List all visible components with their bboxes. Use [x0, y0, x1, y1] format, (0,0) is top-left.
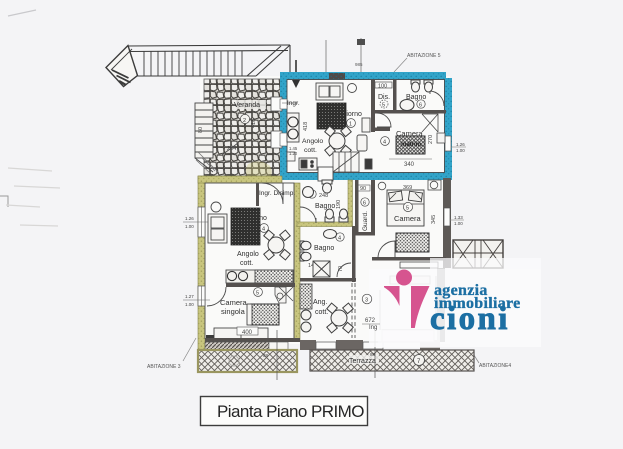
- svg-text:672: 672: [365, 318, 376, 324]
- svg-text:ABITAZIONE 5: ABITAZIONE 5: [407, 53, 441, 59]
- svg-text:Ing: Ing: [369, 325, 377, 331]
- svg-text:400: 400: [242, 330, 253, 336]
- svg-text:1.00: 1.00: [185, 224, 194, 229]
- svg-text:2: 2: [243, 118, 246, 124]
- svg-text:Camera: Camera: [220, 298, 248, 307]
- svg-text:88: 88: [370, 352, 376, 357]
- svg-text:singola: singola: [221, 307, 246, 316]
- svg-text:4: 4: [262, 227, 265, 233]
- svg-text:5: 5: [256, 291, 259, 297]
- svg-text:80: 80: [198, 127, 204, 133]
- svg-text:369: 369: [403, 185, 412, 191]
- svg-text:345: 345: [431, 215, 437, 224]
- svg-text:284: 284: [227, 146, 236, 152]
- svg-text:6: 6: [419, 103, 422, 109]
- svg-text:88: 88: [263, 353, 269, 358]
- svg-text:340: 340: [404, 162, 415, 168]
- svg-text:cott.: cott.: [315, 309, 328, 316]
- svg-text:Dis.: Dis.: [378, 94, 390, 101]
- svg-text:cioni: cioni: [430, 301, 510, 337]
- svg-text:90: 90: [360, 186, 366, 192]
- svg-text:1.27: 1.27: [185, 294, 194, 299]
- svg-text:Bagno: Bagno: [315, 203, 335, 210]
- svg-text:4: 4: [338, 236, 341, 242]
- svg-text:1.33: 1.33: [454, 215, 463, 220]
- svg-text:cott.: cott.: [240, 260, 253, 267]
- svg-text:Angolo: Angolo: [237, 251, 259, 258]
- svg-text:Terrazza: Terrazza: [349, 358, 376, 365]
- svg-text:Pianta Piano PRIMO: Pianta Piano PRIMO: [217, 402, 364, 421]
- svg-text:4: 4: [383, 140, 386, 146]
- svg-text:985: 985: [355, 62, 363, 67]
- svg-text:5: 5: [382, 103, 385, 109]
- svg-text:1.00: 1.00: [454, 221, 463, 226]
- svg-text:1.00: 1.00: [185, 302, 194, 307]
- svg-text:Ingr. Disimp.: Ingr. Disimp.: [259, 190, 295, 197]
- svg-text:248: 248: [319, 193, 328, 199]
- svg-text:Ang.: Ang.: [313, 299, 327, 306]
- svg-text:1: 1: [349, 122, 352, 128]
- svg-text:418: 418: [251, 119, 257, 128]
- svg-text:100: 100: [378, 84, 387, 90]
- svg-text:cott.: cott.: [304, 147, 317, 154]
- svg-text:Guard.: Guard.: [362, 211, 369, 231]
- svg-text:Veranda: Veranda: [234, 102, 260, 109]
- svg-text:Ingr.: Ingr.: [287, 100, 300, 107]
- svg-text:3: 3: [365, 298, 368, 304]
- svg-text:Angolo: Angolo: [302, 138, 323, 145]
- svg-text:1.26: 1.26: [185, 216, 194, 221]
- svg-text:190: 190: [336, 200, 342, 209]
- svg-text:Camera: Camera: [394, 214, 422, 223]
- svg-text:270: 270: [428, 135, 434, 144]
- svg-text:6: 6: [363, 201, 366, 207]
- svg-text:1.00: 1.00: [456, 148, 465, 153]
- svg-text:ABITAZIONE 3: ABITAZIONE 3: [147, 364, 181, 370]
- svg-text:5: 5: [406, 206, 409, 212]
- svg-text:1.26: 1.26: [456, 142, 465, 147]
- svg-text:Bagno: Bagno: [314, 245, 334, 252]
- svg-text:ABITAZIONE4: ABITAZIONE4: [479, 363, 511, 369]
- svg-text:418: 418: [303, 122, 309, 131]
- svg-text:1.20: 1.20: [289, 151, 298, 156]
- svg-text:matrim.: matrim.: [401, 142, 423, 148]
